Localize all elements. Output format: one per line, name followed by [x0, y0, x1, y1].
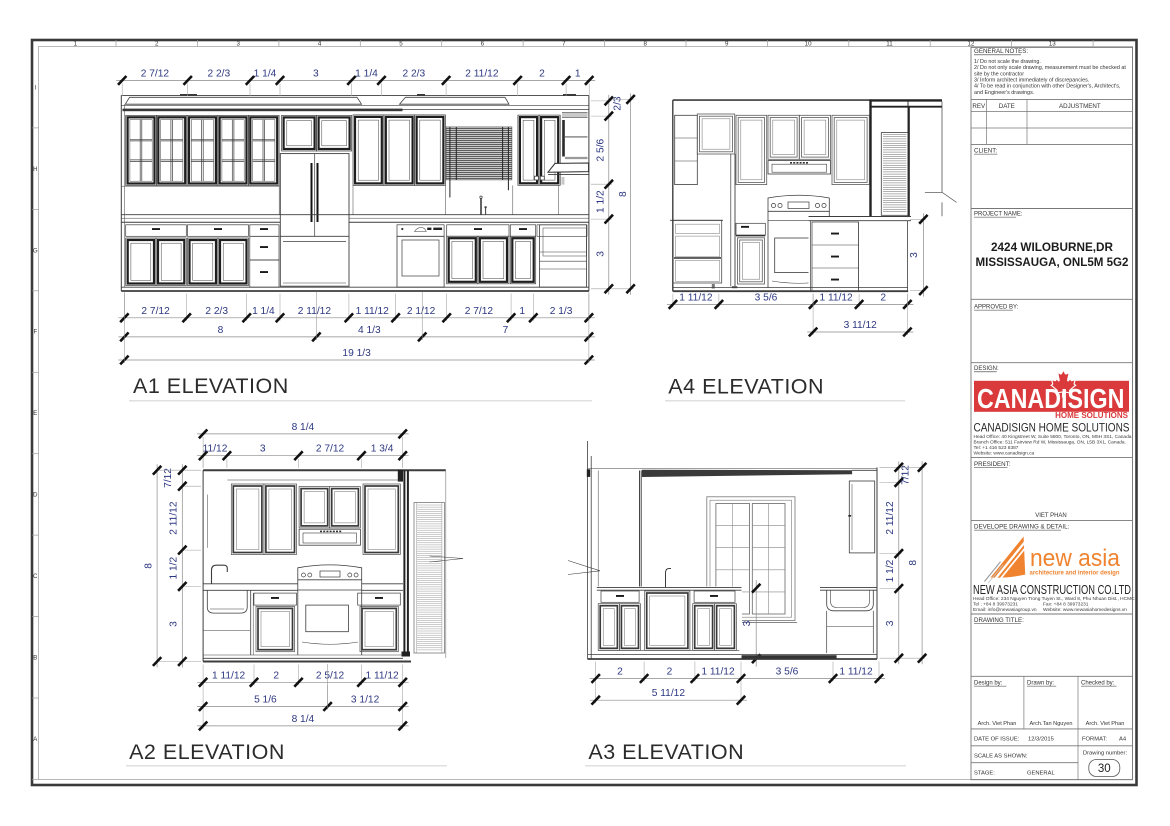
svg-text:8: 8 [618, 191, 629, 197]
svg-text:NEW ASIA CONSTRUCTION CO.LTD: NEW ASIA CONSTRUCTION CO.LTD [973, 582, 1131, 597]
svg-text:2 7/12: 2 7/12 [141, 68, 170, 79]
svg-text:2/ Do not only scale drawing,: 2/ Do not only scale drawing, measuremen… [974, 65, 1126, 71]
svg-text:1 1/2: 1 1/2 [596, 190, 607, 213]
svg-text:3: 3 [742, 620, 753, 626]
svg-text:3: 3 [885, 620, 896, 626]
svg-text:2 11/12: 2 11/12 [885, 501, 896, 535]
svg-text:1 1/2: 1 1/2 [885, 559, 896, 582]
svg-text:DATE OF ISSUE:: DATE OF ISSUE: [974, 737, 1020, 743]
svg-text:2 7/12: 2 7/12 [141, 306, 170, 317]
svg-text:1 1/4: 1 1/4 [254, 68, 277, 79]
svg-text:DATE: DATE [999, 103, 1015, 110]
svg-text:Tel : +84 8 39973231: Tel : +84 8 39973231 [973, 602, 1018, 608]
svg-text:FORMAT:: FORMAT: [1082, 737, 1107, 743]
svg-text:F: F [33, 330, 37, 336]
svg-text:A4 ELEVATION: A4 ELEVATION [668, 375, 824, 399]
svg-text:1 1/2: 1 1/2 [169, 557, 180, 580]
svg-text:site by the contractor: site by the contractor [974, 71, 1024, 77]
svg-text:3/ Inform architect immediatel: 3/ Inform architect immediately of discr… [974, 78, 1089, 84]
svg-text:2/3: 2/3 [613, 96, 624, 110]
svg-text:11/12: 11/12 [203, 444, 228, 455]
svg-text:GENERAL: GENERAL [1027, 770, 1055, 776]
svg-text:Tel: +1 416 523 8387: Tel: +1 416 523 8387 [974, 445, 1019, 451]
svg-text:3 5/6: 3 5/6 [755, 292, 778, 303]
svg-text:8: 8 [144, 563, 155, 569]
svg-text:STAGE:: STAGE: [974, 770, 995, 776]
svg-text:30: 30 [1098, 763, 1111, 775]
svg-text:8: 8 [218, 325, 224, 336]
svg-text:ADJUSTMENT: ADJUSTMENT [1059, 103, 1101, 110]
svg-text:3: 3 [169, 621, 180, 627]
svg-text:6: 6 [481, 40, 485, 47]
svg-text:Checked by:: Checked by: [1081, 681, 1115, 687]
svg-text:8 1/4: 8 1/4 [292, 714, 315, 725]
svg-text:1 1/4: 1 1/4 [252, 306, 275, 317]
svg-text:1 11/12: 1 11/12 [356, 306, 390, 317]
svg-text:5: 5 [399, 40, 403, 47]
svg-text:1: 1 [519, 306, 525, 317]
svg-text:2 2/3: 2 2/3 [402, 68, 425, 79]
svg-text:1: 1 [575, 68, 581, 79]
svg-text:3: 3 [596, 251, 607, 257]
svg-text:2 1/12: 2 1/12 [407, 306, 436, 317]
svg-text:2: 2 [273, 670, 279, 681]
svg-text:7: 7 [562, 40, 566, 47]
svg-text:CANADISIGN: CANADISIGN [977, 383, 1125, 414]
svg-text:7/12: 7/12 [901, 465, 912, 485]
svg-text:1 11/12: 1 11/12 [365, 670, 399, 681]
svg-text:Drawn by:: Drawn by: [1027, 681, 1054, 687]
svg-text:2 5/12: 2 5/12 [316, 670, 345, 681]
svg-text:2 7/12: 2 7/12 [316, 444, 345, 455]
svg-text:2: 2 [880, 292, 886, 303]
svg-text:new asia: new asia [1030, 545, 1120, 572]
svg-text:3: 3 [909, 252, 920, 258]
svg-text:Fax: +84 8 39973231: Fax: +84 8 39973231 [1043, 602, 1089, 608]
svg-text:2 1/3: 2 1/3 [550, 306, 573, 317]
svg-text:Website: www.newasiahomedesign: Website: www.newasiahomedesigns.vn [1043, 607, 1127, 613]
svg-text:Arch.Tan Nguyen: Arch.Tan Nguyen [1030, 721, 1073, 727]
svg-text:G: G [33, 248, 38, 254]
svg-text:I: I [34, 85, 36, 91]
svg-text:4/ To be read in conjunction w: 4/ To be read in conjunction with other … [974, 84, 1121, 90]
svg-text:Email: info@newasiagroup.vn: Email: info@newasiagroup.vn [973, 607, 1037, 613]
svg-text:12: 12 [967, 40, 974, 47]
svg-text:DRAWING TITLE:: DRAWING TITLE: [974, 617, 1024, 624]
svg-text:2 7/12: 2 7/12 [465, 306, 494, 317]
svg-text:7: 7 [503, 325, 509, 336]
svg-text:D: D [33, 493, 38, 499]
svg-text:Design by:: Design by: [974, 681, 1003, 687]
svg-text:Drawing number:: Drawing number: [1083, 751, 1128, 757]
svg-text:A4: A4 [1119, 737, 1127, 743]
svg-text:and Engineer's drawings.: and Engineer's drawings. [974, 90, 1034, 96]
svg-text:PRESIDENT:: PRESIDENT: [974, 461, 1011, 468]
svg-text:A1 ELEVATION: A1 ELEVATION [133, 374, 289, 398]
svg-text:4 1/3: 4 1/3 [358, 325, 381, 336]
svg-text:A: A [33, 737, 37, 743]
svg-text:13: 13 [1049, 40, 1056, 47]
svg-text:H: H [33, 167, 37, 173]
svg-text:2 11/12: 2 11/12 [298, 306, 332, 317]
svg-text:12/3/2015: 12/3/2015 [1028, 737, 1054, 743]
svg-text:2 11/12: 2 11/12 [465, 68, 499, 79]
svg-text:8: 8 [643, 40, 647, 47]
svg-text:architecture and interior desi: architecture and interior design [1030, 570, 1120, 577]
svg-text:E: E [33, 411, 37, 417]
svg-text:A2 ELEVATION: A2 ELEVATION [129, 740, 285, 764]
svg-text:5 1/6: 5 1/6 [254, 695, 277, 706]
svg-text:2 11/12: 2 11/12 [169, 501, 180, 535]
svg-text:3: 3 [260, 444, 266, 455]
svg-text:DESIGN:: DESIGN: [974, 366, 999, 372]
svg-text:GENERAL NOTES:: GENERAL NOTES: [974, 48, 1028, 55]
svg-text:3 1/12: 3 1/12 [351, 695, 380, 706]
svg-text:1 3/4: 1 3/4 [371, 444, 394, 455]
svg-text:PROJECT NAME:: PROJECT NAME: [974, 212, 1023, 218]
svg-text:Head Office: 234 Nguyen Trong: Head Office: 234 Nguyen Trong Tuyen St.,… [973, 596, 1135, 602]
svg-text:8 1/4: 8 1/4 [292, 422, 315, 433]
svg-text:Arch. Viet Phan: Arch. Viet Phan [1086, 721, 1125, 727]
svg-text:3: 3 [236, 40, 240, 47]
svg-text:11: 11 [886, 40, 893, 47]
svg-text:2: 2 [617, 667, 623, 678]
svg-text:B: B [33, 656, 37, 662]
svg-text:19 1/3: 19 1/3 [342, 348, 371, 359]
svg-text:Website: www.canadisign.ca: Website: www.canadisign.ca [974, 450, 1035, 456]
svg-text:2 2/3: 2 2/3 [207, 68, 230, 79]
svg-text:2: 2 [667, 667, 673, 678]
svg-text:C: C [33, 574, 38, 580]
svg-text:3 11/12: 3 11/12 [844, 320, 878, 331]
svg-text:2: 2 [539, 68, 545, 79]
svg-text:1 11/12: 1 11/12 [819, 292, 853, 303]
svg-text:2: 2 [155, 40, 159, 47]
svg-text:2424 WILOBURNE,DR: 2424 WILOBURNE,DR [991, 242, 1114, 254]
svg-text:1 11/12: 1 11/12 [839, 667, 873, 678]
svg-text:HOME SOLUTIONS: HOME SOLUTIONS [1055, 411, 1129, 420]
svg-text:7/12: 7/12 [163, 468, 174, 488]
svg-text:8: 8 [908, 560, 919, 566]
svg-text:4: 4 [318, 40, 322, 47]
svg-text:REV: REV [972, 103, 986, 110]
svg-text:Head Office: 40 Kingstreet W,: Head Office: 40 Kingstreet W, Suite 5800… [974, 434, 1133, 440]
svg-text:MISSISSAUGA, ONL5M 5G2: MISSISSAUGA, ONL5M 5G2 [976, 257, 1129, 269]
svg-text:1: 1 [74, 40, 78, 47]
svg-text:2 5/6: 2 5/6 [596, 138, 607, 161]
svg-text:Arch. Viet Phan: Arch. Viet Phan [978, 721, 1017, 727]
svg-text:3: 3 [313, 68, 319, 79]
svg-text:10: 10 [805, 40, 812, 47]
svg-text:CLIENT:: CLIENT: [974, 148, 997, 155]
svg-text:VIET PHAN: VIET PHAN [1035, 513, 1067, 519]
svg-text:9: 9 [725, 40, 729, 47]
svg-text:2 2/3: 2 2/3 [205, 306, 228, 317]
svg-text:SCALE AS SHOWN:: SCALE AS SHOWN: [974, 753, 1028, 759]
svg-text:1 11/12: 1 11/12 [212, 670, 246, 681]
svg-text:CANADISIGN HOME SOLUTIONS: CANADISIGN HOME SOLUTIONS [974, 421, 1130, 435]
svg-text:1/ Do not scale the drawing.: 1/ Do not scale the drawing. [974, 59, 1041, 65]
svg-text:Branch Office: 511 Fairview Rd: Branch Office: 511 Fairview Rd W, Missis… [974, 439, 1126, 445]
svg-text:1 11/12: 1 11/12 [701, 667, 735, 678]
svg-text:1 11/12: 1 11/12 [679, 292, 713, 303]
svg-text:A3 ELEVATION: A3 ELEVATION [588, 740, 744, 764]
svg-text:APPROVED BY:: APPROVED BY: [974, 305, 1019, 311]
svg-text:1 1/4: 1 1/4 [355, 68, 378, 79]
svg-text:3 5/6: 3 5/6 [776, 667, 799, 678]
svg-text:5 11/12: 5 11/12 [652, 688, 686, 699]
svg-text:DEVELOPE DRAWING & DETAIL:: DEVELOPE DRAWING & DETAIL: [974, 524, 1070, 531]
